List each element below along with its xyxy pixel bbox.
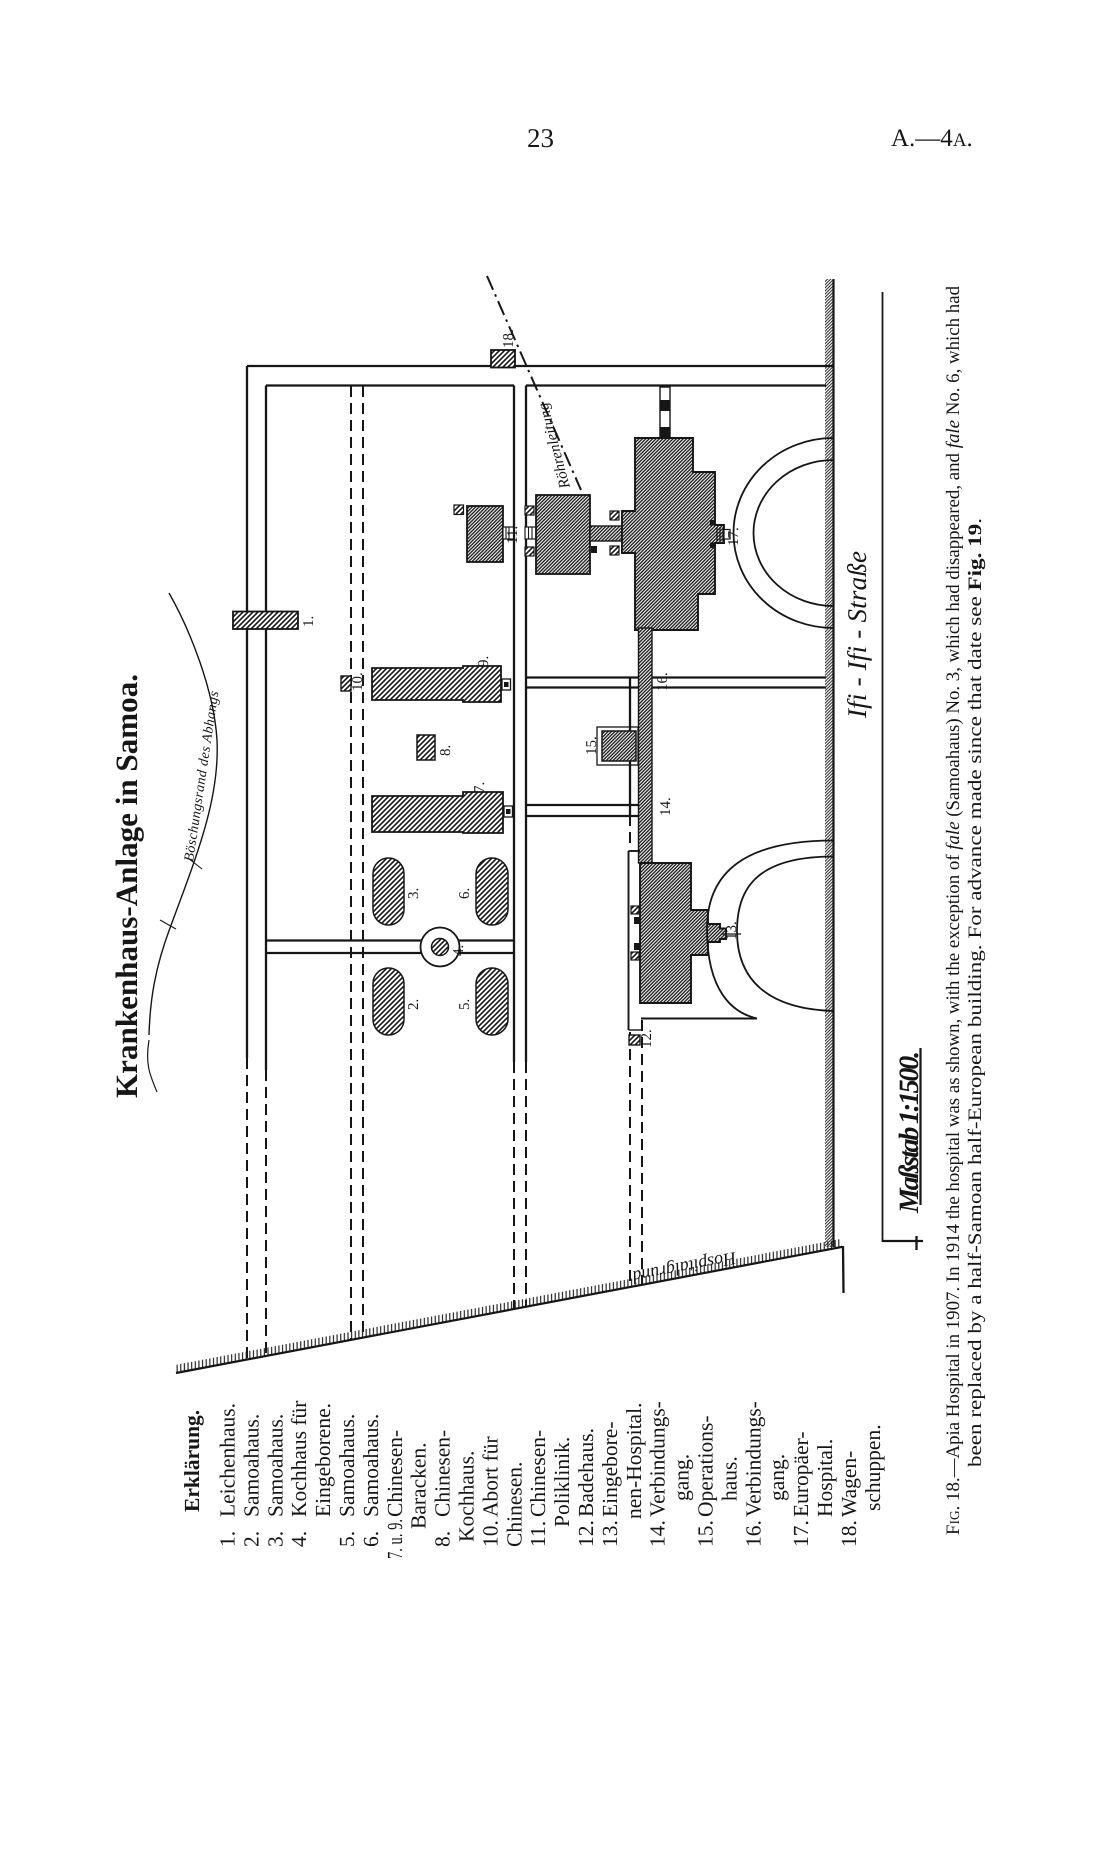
svg-text:Badehaus.: Badehaus. — [574, 1428, 598, 1517]
svg-text:Eingebore-: Eingebore- — [598, 1421, 622, 1517]
svg-text:Chinesen-: Chinesen- — [431, 1430, 455, 1517]
svg-text:3.: 3. — [263, 1531, 287, 1547]
svg-text:17.: 17. — [726, 527, 742, 546]
svg-text:A.—4A.: A.—4A. — [891, 125, 973, 152]
svg-text:11.: 11. — [505, 526, 521, 544]
svg-text:12.: 12. — [639, 1029, 655, 1048]
svg-text:3.: 3. — [406, 888, 422, 899]
svg-text:Hospitalgrund: Hospitalgrund — [630, 1248, 739, 1288]
svg-text:15.: 15. — [584, 736, 600, 755]
svg-text:Samoahaus.: Samoahaus. — [239, 1414, 263, 1517]
svg-text:Chinesen-: Chinesen- — [383, 1430, 407, 1517]
svg-text:Erklärung.: Erklärung. — [180, 1410, 204, 1512]
svg-text:Europäer-: Europäer- — [789, 1431, 813, 1517]
svg-text:7. u. 9.: 7. u. 9. — [383, 1519, 407, 1559]
svg-text:2.: 2. — [406, 999, 422, 1010]
svg-text:4.: 4. — [451, 945, 467, 956]
svg-text:17.: 17. — [789, 1520, 813, 1547]
svg-text:Kochhaus.: Kochhaus. — [455, 1451, 479, 1542]
svg-text:Maßstab 1:1500.: Maßstab 1:1500. — [894, 1051, 925, 1214]
svg-text:23: 23 — [527, 123, 554, 153]
svg-text:Samoahaus.: Samoahaus. — [359, 1414, 383, 1517]
svg-text:10.: 10. — [478, 1520, 502, 1547]
svg-text:gang.: gang. — [670, 1454, 694, 1501]
svg-text:5.: 5. — [335, 1531, 359, 1547]
svg-text:Ifi - Ifi - Straße: Ifi - Ifi - Straße — [842, 551, 872, 719]
svg-text:10.: 10. — [350, 672, 366, 691]
svg-text:15.: 15. — [694, 1520, 718, 1547]
svg-text:Kochhaus für: Kochhaus für — [287, 1401, 311, 1517]
svg-text:nen-Hospital.: nen-Hospital. — [622, 1403, 646, 1519]
svg-text:Baracken.: Baracken. — [407, 1442, 431, 1529]
svg-text:5.: 5. — [457, 999, 473, 1010]
svg-text:14.: 14. — [658, 797, 674, 816]
svg-text:Wagen-: Wagen- — [837, 1451, 861, 1517]
svg-text:6.: 6. — [359, 1531, 383, 1547]
svg-text:1.: 1. — [216, 1531, 240, 1547]
svg-text:18.: 18. — [501, 329, 517, 348]
svg-text:6.: 6. — [457, 888, 473, 899]
svg-text:13.: 13. — [598, 1520, 622, 1547]
svg-text:been replaced by a half-Samoan: been replaced by a half-Samoan half-Euro… — [965, 518, 986, 1467]
svg-text:11.: 11. — [526, 1521, 550, 1547]
svg-text:16.: 16. — [741, 1520, 765, 1547]
svg-text:14.: 14. — [646, 1520, 670, 1547]
svg-text:8.: 8. — [438, 745, 454, 756]
svg-text:7.: 7. — [472, 782, 488, 793]
svg-text:13.: 13. — [724, 921, 740, 940]
svg-text:Leichenhaus.: Leichenhaus. — [216, 1403, 240, 1517]
svg-text:2.: 2. — [239, 1531, 263, 1547]
svg-text:9.: 9. — [476, 656, 492, 667]
svg-text:Röhrenleitung: Röhrenleitung — [535, 401, 575, 492]
svg-text:Krankenhaus-Anlage in Samoa.: Krankenhaus-Anlage in Samoa. — [109, 674, 144, 1098]
svg-text:4.: 4. — [287, 1531, 311, 1547]
svg-text:schuppen.: schuppen. — [861, 1424, 885, 1511]
svg-text:FIG. 18.—Apia Hospital in 1907: FIG. 18.—Apia Hospital in 1907. In 1914 … — [943, 286, 964, 1535]
svg-text:gang.: gang. — [765, 1454, 789, 1501]
svg-text:Samoahaus.: Samoahaus. — [263, 1414, 287, 1517]
svg-text:8.: 8. — [431, 1531, 455, 1547]
svg-text:Operations-: Operations- — [694, 1416, 718, 1518]
svg-text:Verbindungs-: Verbindungs- — [741, 1401, 765, 1517]
svg-text:Hospital.: Hospital. — [813, 1439, 837, 1517]
svg-text:Eingeborene.: Eingeborene. — [311, 1403, 335, 1517]
svg-text:Chinesen-: Chinesen- — [526, 1430, 550, 1517]
svg-text:haus.: haus. — [717, 1456, 741, 1501]
svg-text:Samoahaus.: Samoahaus. — [335, 1414, 359, 1517]
svg-text:16.: 16. — [655, 672, 671, 691]
svg-text:Poliklinik.: Poliklinik. — [550, 1437, 574, 1527]
svg-text:12.: 12. — [574, 1520, 598, 1547]
svg-text:Chinesen.: Chinesen. — [502, 1462, 526, 1547]
svg-text:1.: 1. — [301, 616, 317, 627]
svg-text:Abort für: Abort für — [478, 1436, 502, 1517]
svg-text:Verbindungs-: Verbindungs- — [646, 1401, 670, 1517]
svg-text:18.: 18. — [837, 1520, 861, 1547]
